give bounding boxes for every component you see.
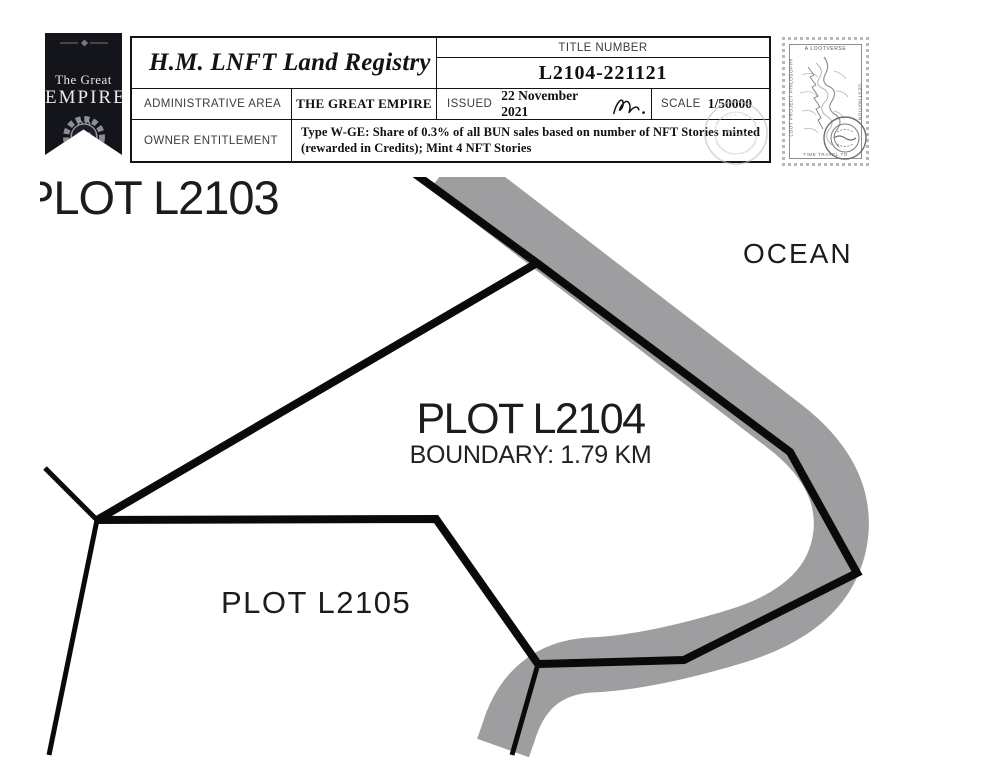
owner-entitlement-line2: (rewarded in Credits); Mint 4 NFT Storie…	[301, 140, 769, 156]
plot-l2105-west-boundary	[49, 520, 97, 755]
plot-l2105-label: PLOT L2105	[221, 585, 411, 621]
signature-icon	[610, 94, 651, 120]
registry-title-block: H.M. LNFT Land Registry TITLE NUMBER L21…	[130, 36, 771, 163]
banner-title-line1: The Great	[45, 72, 122, 88]
notary-seal-icon	[702, 99, 770, 167]
issued-date: 22 November 2021	[501, 88, 601, 120]
postmark-icon	[821, 114, 869, 162]
admin-area-label: ADMINISTRATIVE AREA	[132, 89, 292, 120]
banner-title-line2: EMPIRE	[45, 87, 122, 109]
plot-l2103-l2105-west-boundary	[45, 468, 97, 520]
owner-entitlement-label: OWNER ENTITLEMENT	[132, 120, 292, 161]
registry-title: H.M. LNFT Land Registry	[149, 49, 431, 77]
admin-area-value: THE GREAT EMPIRE	[292, 89, 437, 120]
plot-l2103-l2104-boundary	[97, 263, 537, 520]
stamp-left-label: LOOT PROJECT PHILOSOPHY	[789, 69, 794, 137]
scale-label: SCALE	[661, 98, 701, 110]
title-number-value: L2104-221121	[437, 58, 769, 89]
banner-ornament-icon	[54, 39, 114, 47]
registry-title-cell: H.M. LNFT Land Registry	[132, 38, 437, 89]
plot-l2104-boundary-length-label: BOUNDARY: 1.79 KM	[408, 441, 653, 470]
owner-entitlement-line1: Type W-GE: Share of 0.3% of all BUN sale…	[301, 124, 769, 140]
issued-label: ISSUED	[447, 98, 492, 110]
stamp-top-label: A LOOTVERSE	[785, 46, 866, 52]
plot-l2104-label: PLOT L2104	[408, 395, 653, 444]
plot-l2103-label: PLOT L2103	[40, 170, 325, 226]
ocean-label: OCEAN	[743, 238, 853, 270]
owner-entitlement-value: Type W-GE: Share of 0.3% of all BUN sale…	[292, 120, 769, 161]
issued-cell: ISSUED 22 November 2021	[437, 89, 652, 120]
title-number-label: TITLE NUMBER	[437, 38, 769, 58]
land-registry-certificate: { "header": { "badge": { "line1": "The G…	[0, 0, 1000, 784]
postage-stamp: A LOOTVERSE LOOT PROJECT PHILOSOPHY DEST…	[782, 37, 869, 166]
